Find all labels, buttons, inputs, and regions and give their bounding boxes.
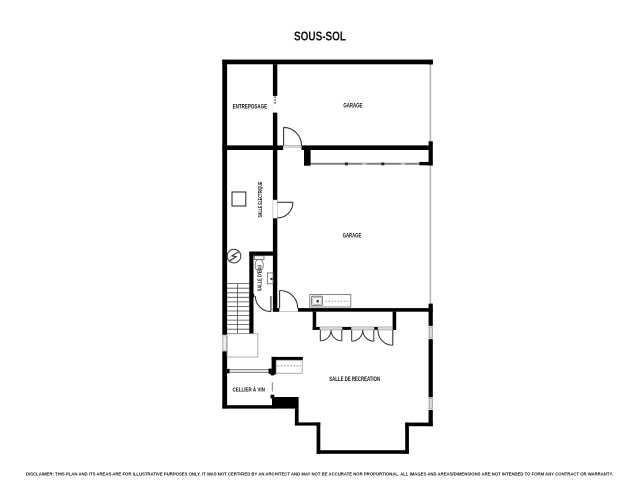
svg-text:GARAGE: GARAGE bbox=[343, 102, 363, 109]
svg-text:SOUS-SOL: SOUS-SOL bbox=[294, 29, 346, 44]
svg-text:GARAGE: GARAGE bbox=[343, 232, 362, 239]
svg-text:SALLE D'EAU: SALLE D'EAU bbox=[258, 265, 264, 292]
svg-text:ENTREPOSAGE: ENTREPOSAGE bbox=[233, 104, 268, 111]
svg-text:SALLE DE RECREATION: SALLE DE RECREATION bbox=[329, 376, 380, 383]
svg-text:CELLIER À VIN: CELLIER À VIN bbox=[233, 387, 265, 394]
svg-text:DISCLAIMER: THIS PLAN AND ITS: DISCLAIMER: THIS PLAN AND ITS AREAS ARE … bbox=[26, 472, 613, 477]
svg-text:SALLE ÉLECTRIQUE: SALLE ÉLECTRIQUE bbox=[256, 181, 264, 217]
